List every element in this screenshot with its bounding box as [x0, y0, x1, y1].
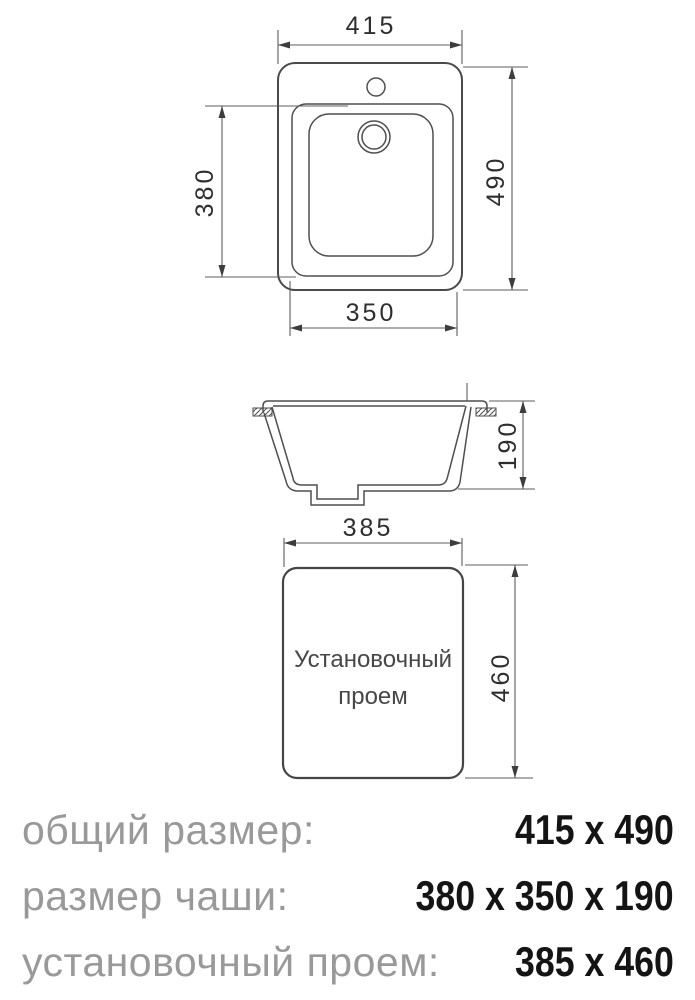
cutout-outline: [283, 568, 463, 778]
dim-text-bowl-length: 380: [191, 167, 219, 218]
dim-text-cutout-width: 385: [343, 514, 394, 542]
countertop-hatch-right: [476, 408, 496, 416]
arrowhead-up: [509, 67, 516, 79]
summary-value: 380 x 350 x 190: [416, 872, 674, 919]
dim-bowl-length: 380: [191, 106, 348, 277]
dim-text-bowl-depth: 190: [494, 420, 522, 471]
arrowhead-down: [219, 265, 226, 277]
cutout-caption-line2: проем: [338, 683, 408, 710]
faucet-hole: [367, 78, 385, 96]
dim-cutout-height: 460: [465, 565, 533, 778]
countertop-hatch-left: [253, 408, 272, 416]
arrowhead-right: [450, 42, 462, 49]
arrowhead-down: [509, 278, 516, 290]
summary-row-bowl-size: размер чаши: 380 x 350 x 190: [22, 872, 674, 920]
summary-value: 385 x 460: [515, 938, 674, 985]
bowl-outer-profile: [264, 407, 471, 505]
sink-deck-profile: [263, 401, 487, 413]
bowl-outline: [309, 114, 433, 256]
arrowhead-up: [512, 565, 519, 577]
arrowhead-right: [445, 325, 457, 332]
sink-technical-drawing: 415 490 380: [0, 0, 695, 1000]
arrowhead-right: [450, 540, 462, 547]
arrowhead-down: [520, 477, 527, 489]
arrowhead-up: [520, 401, 527, 413]
dim-text-overall-height: 490: [482, 156, 510, 207]
sink-rim-outline: [292, 104, 453, 276]
dim-text-cutout-height: 460: [487, 652, 515, 703]
cutout-caption-line1: Установочный: [294, 646, 452, 673]
bowl-inner-profile: [272, 406, 466, 499]
top-view: 415 490 380: [191, 12, 528, 336]
dim-text-bowl-width: 350: [346, 299, 397, 327]
summary-label: установочный проем:: [22, 940, 440, 986]
summary-label: общий размер:: [22, 808, 315, 854]
arrowhead-down: [512, 766, 519, 778]
drain-hole-inner: [362, 125, 386, 149]
dim-overall-height: 490: [463, 67, 528, 290]
dim-text-overall-width: 415: [346, 12, 397, 40]
arrowhead-left: [290, 325, 302, 332]
dim-cutout-width: 385: [284, 514, 462, 567]
arrowhead-up: [219, 106, 226, 118]
summary-label: размер чаши:: [22, 874, 288, 920]
arrowhead-left: [278, 42, 290, 49]
summary-row-overall-size: общий размер: 415 x 490: [22, 806, 674, 854]
section-view: 190: [253, 383, 535, 505]
dim-overall-width: 415: [278, 12, 462, 64]
summary-row-cutout-size: установочный проем: 385 x 460: [22, 938, 674, 986]
drain-hole-outer: [358, 121, 390, 153]
arrowhead-left: [284, 540, 296, 547]
cutout-view: Установочный проем 385 460: [283, 514, 533, 778]
summary-value: 415 x 490: [515, 806, 674, 853]
